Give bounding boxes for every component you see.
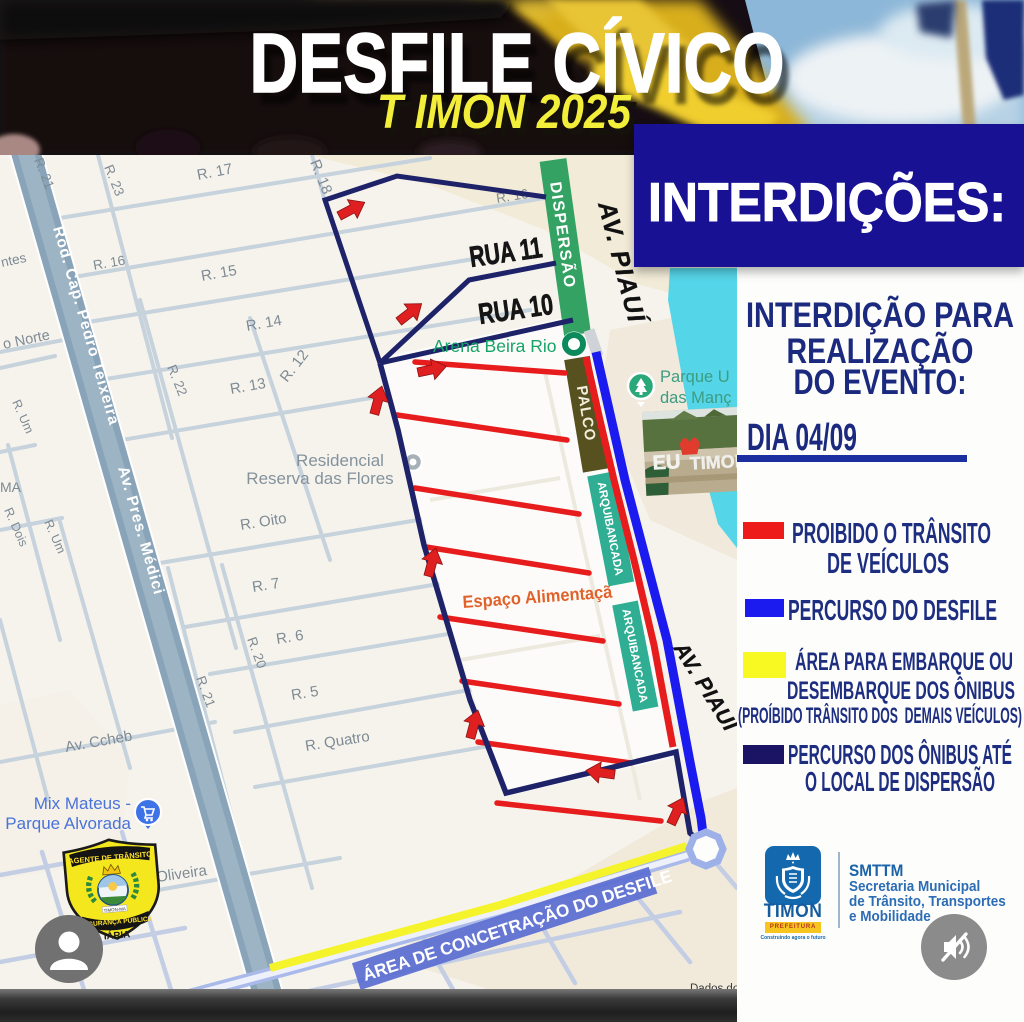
svg-text:Parque Alvorada: Parque Alvorada (5, 814, 131, 833)
svg-text:ÁREA PARA EMBARQUE OU: ÁREA PARA EMBARQUE OU (795, 647, 1013, 676)
svg-text:MA: MA (0, 479, 22, 495)
svg-text:TIMON: TIMON (689, 451, 737, 474)
svg-text:IÁRIA: IÁRIA (103, 929, 130, 942)
svg-text:PERCURSO DO DESFILE: PERCURSO DO DESFILE (788, 595, 997, 627)
svg-text:DESEMBARQUE DOS ÔNIBUS: DESEMBARQUE DOS ÔNIBUS (787, 675, 1015, 705)
svg-text:Mix Mateus -: Mix Mateus - (34, 794, 131, 813)
svg-text:O LOCAL DE DISPERSÃO: O LOCAL DE DISPERSÃO (805, 766, 995, 797)
svg-text:DO EVENTO:: DO EVENTO: (794, 362, 967, 402)
svg-text:Reserva das Flores: Reserva das Flores (246, 469, 393, 488)
svg-text:PROIBIDO O TRÂNSITO: PROIBIDO O TRÂNSITO (792, 516, 991, 550)
svg-text:Parque U: Parque U (660, 368, 730, 386)
svg-text:(PROÍBIDO TRÂNSITO DOS DEMAIS: (PROÍBIDO TRÂNSITO DOS DEMAIS VEÍCULOS) (738, 703, 1022, 728)
svg-text:Residencial: Residencial (296, 451, 384, 470)
svg-text:INTERDIÇÕES:: INTERDIÇÕES: (648, 171, 1006, 233)
svg-text:DE VEÍCULOS: DE VEÍCULOS (827, 546, 949, 580)
svg-text:das Manç: das Manç (660, 389, 732, 407)
svg-text:INTERDIÇÃO PARA: INTERDIÇÃO PARA (746, 295, 1014, 335)
svg-text:Arena Beira Rio: Arena Beira Rio (433, 336, 557, 356)
svg-text:EU: EU (652, 451, 681, 474)
svg-text:T IMON 2025: T IMON 2025 (377, 86, 632, 139)
svg-text:DIA 04/09: DIA 04/09 (747, 417, 857, 459)
